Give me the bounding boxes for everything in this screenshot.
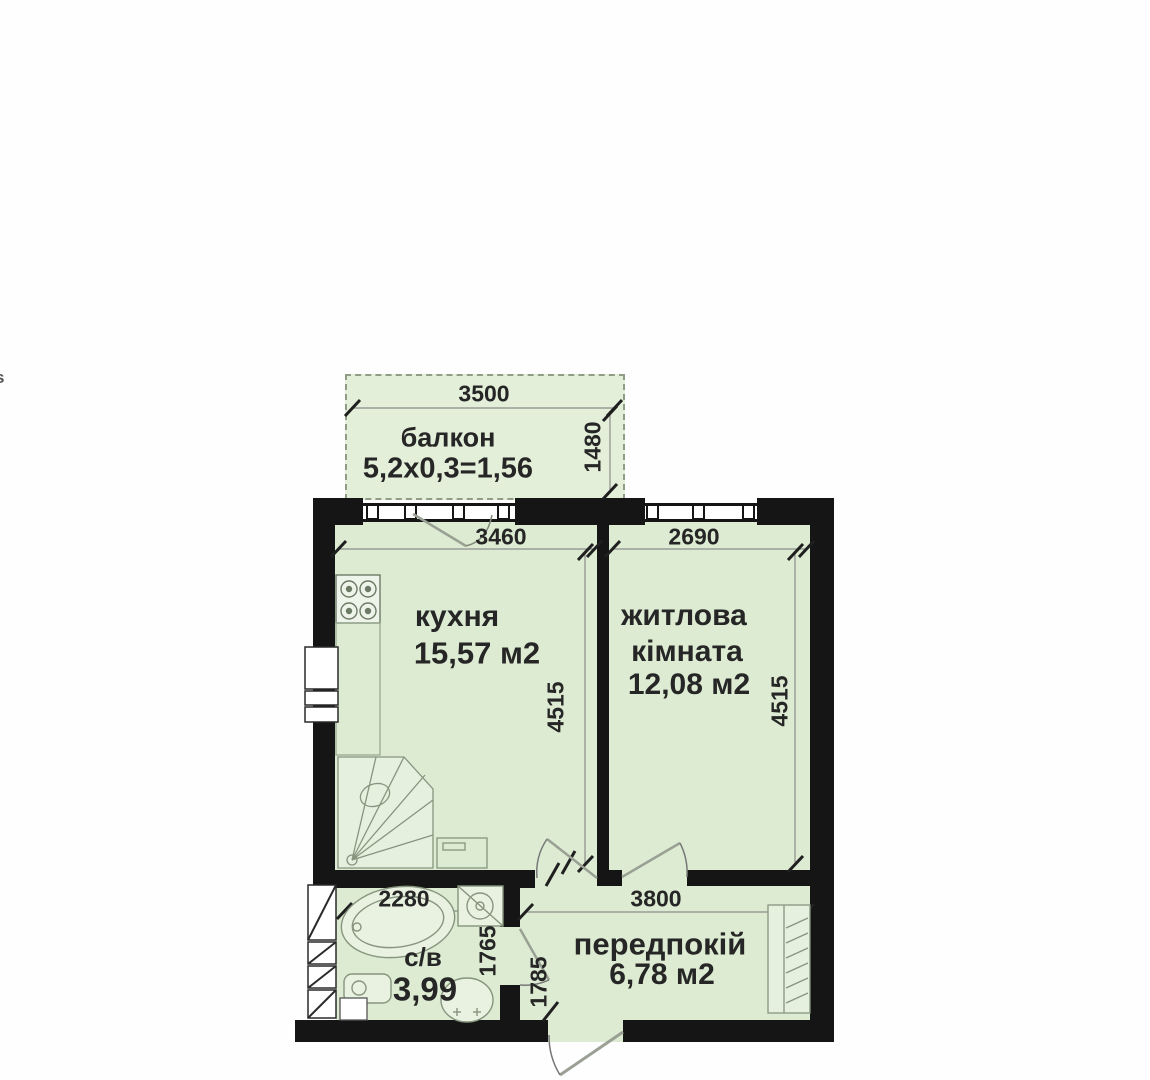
dim-hallway-width: 3800 <box>630 888 681 911</box>
hallway-label: передпокій <box>574 929 747 960</box>
dim-kitchen-height: 4515 <box>545 681 568 732</box>
floor-plan: s <box>0 0 1150 1080</box>
dim-bathroom-width: 2280 <box>378 888 429 911</box>
kitchen-area: 15,57 м2 <box>414 638 540 669</box>
washing-machine-symbol <box>458 886 503 926</box>
dim-hallway-height: 1785 <box>528 956 551 1007</box>
kitchen-label: кухня <box>415 602 499 632</box>
balcony-label: балкон <box>401 425 496 452</box>
dim-balcony-width: 3500 <box>458 383 509 406</box>
dishwasher-symbol <box>437 838 487 868</box>
hallway-area: 6,78 м2 <box>609 960 715 990</box>
living-area: 12,08 м2 <box>628 670 750 700</box>
bathroom-area: 3,99 <box>393 973 457 1006</box>
living-label-line2: кімната <box>631 637 743 667</box>
dim-kitchen-width: 3460 <box>475 526 526 549</box>
riser-shaft-symbol <box>308 885 336 1018</box>
cabinet-symbol <box>340 998 367 1020</box>
stove-symbol <box>336 575 380 623</box>
balcony-area-formula: 5,2х0,3=1,56 <box>363 455 533 484</box>
corner-sink-symbol <box>338 757 433 868</box>
living-room-door <box>622 843 687 877</box>
living-label-line1: житлова <box>621 601 747 631</box>
counter-symbol <box>336 623 380 755</box>
dim-living-height: 4515 <box>769 675 792 726</box>
bathroom-label: с/в <box>404 944 442 970</box>
closet-symbol <box>768 905 810 1013</box>
kitchen-door <box>537 839 597 878</box>
dim-balcony-depth: 1480 <box>582 421 605 472</box>
plan-symbols-layer <box>0 0 1150 1080</box>
vent-shaft-symbol <box>305 647 338 722</box>
entrance-door <box>549 1032 623 1075</box>
dim-living-width: 2690 <box>668 526 719 549</box>
dim-bathroom-height: 1765 <box>477 925 500 976</box>
